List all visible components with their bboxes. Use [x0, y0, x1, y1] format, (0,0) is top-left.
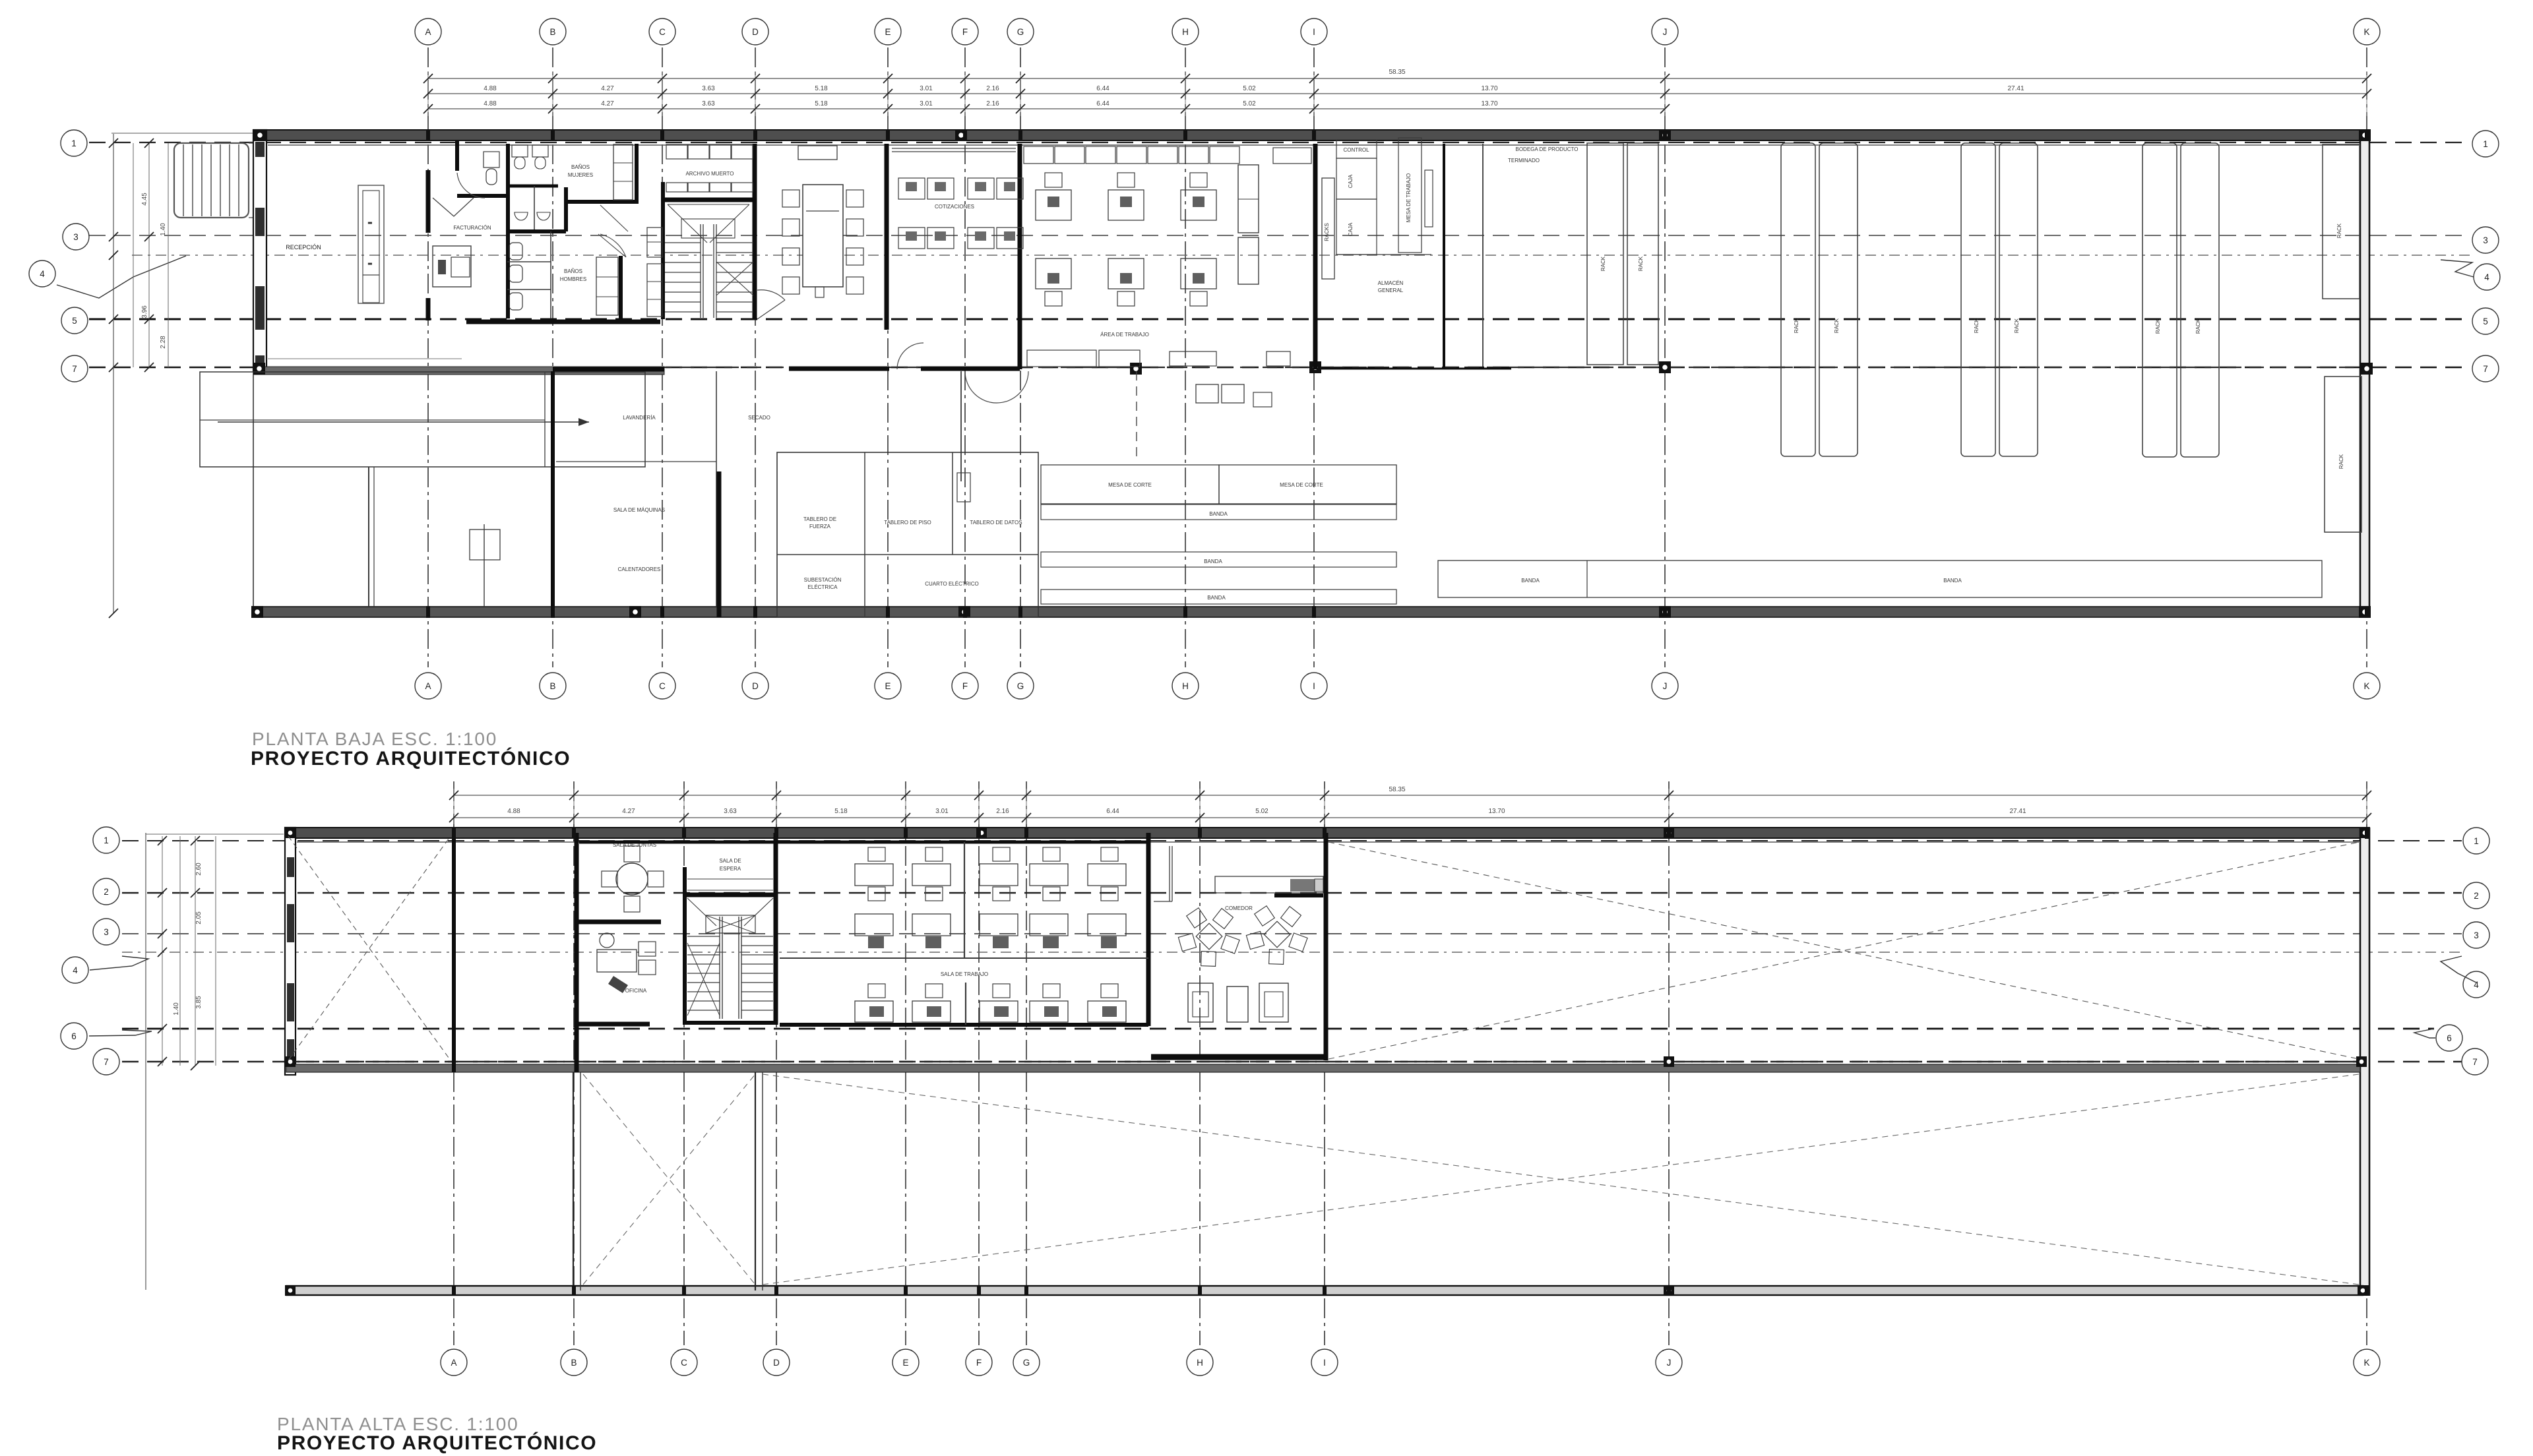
svg-text:RACK: RACK	[2014, 318, 2020, 333]
svg-text:4.27: 4.27	[622, 808, 635, 815]
svg-text:PLANTA ALTA ESC. 1:100: PLANTA ALTA ESC. 1:100	[277, 1414, 518, 1434]
svg-text:2.28: 2.28	[160, 336, 167, 349]
svg-text:ÁREA DE TRABAJO: ÁREA DE TRABAJO	[1100, 332, 1149, 338]
svg-text:BANDA: BANDA	[1207, 595, 1226, 601]
svg-text:I: I	[1323, 1358, 1326, 1368]
svg-text:PLANTA BAJA ESC. 1:100: PLANTA BAJA ESC. 1:100	[252, 729, 497, 749]
svg-text:3: 3	[73, 232, 78, 242]
svg-text:A: A	[425, 681, 431, 691]
svg-text:3.63: 3.63	[724, 808, 737, 815]
svg-text:PROYECTO ARQUITECTÓNICO: PROYECTO ARQUITECTÓNICO	[277, 1432, 597, 1454]
svg-text:C: C	[681, 1358, 687, 1368]
svg-text:RACK: RACK	[1638, 256, 1644, 271]
svg-text:RACK: RACK	[1794, 318, 1799, 333]
svg-text:J: J	[1663, 27, 1668, 37]
svg-text:4: 4	[40, 269, 45, 279]
svg-text:3: 3	[2474, 930, 2479, 940]
svg-text:I: I	[1313, 681, 1315, 691]
svg-text:4: 4	[73, 965, 78, 975]
svg-text:RACK: RACK	[2155, 318, 2161, 334]
svg-text:MUJERES: MUJERES	[568, 172, 593, 178]
svg-text:RACK: RACK	[2338, 454, 2344, 469]
svg-text:MESA DE CORTE: MESA DE CORTE	[1280, 482, 1323, 488]
svg-text:H: H	[1182, 681, 1189, 691]
svg-text:CALENTADORES: CALENTADORES	[618, 566, 661, 572]
svg-text:2.16: 2.16	[996, 808, 1009, 815]
svg-text:CONTROL: CONTROL	[1343, 147, 1369, 153]
svg-text:SECADO: SECADO	[748, 415, 770, 421]
svg-text:E: E	[885, 27, 891, 37]
svg-text:2.16: 2.16	[986, 100, 999, 107]
svg-text:SALA DE TRABAJO: SALA DE TRABAJO	[941, 971, 988, 977]
svg-text:2.60: 2.60	[195, 863, 203, 876]
svg-text:FUERZA: FUERZA	[809, 524, 831, 530]
svg-text:13.70: 13.70	[1488, 808, 1505, 815]
svg-text:2: 2	[104, 887, 109, 897]
svg-text:4.45: 4.45	[141, 193, 148, 206]
svg-text:K: K	[2363, 681, 2369, 691]
svg-text:7: 7	[2483, 364, 2488, 374]
svg-text:BANDA: BANDA	[1209, 511, 1228, 517]
svg-text:4.88: 4.88	[484, 100, 497, 107]
svg-text:RACK: RACK	[1974, 318, 1980, 333]
svg-text:RACK: RACK	[2336, 223, 2342, 238]
svg-text:A: A	[451, 1358, 456, 1368]
svg-text:1.40: 1.40	[173, 1002, 180, 1016]
svg-text:6.44: 6.44	[1106, 808, 1119, 815]
svg-text:5.18: 5.18	[815, 85, 828, 92]
svg-text:MESA DE CORTE: MESA DE CORTE	[1108, 482, 1152, 488]
svg-text:4.88: 4.88	[484, 85, 497, 92]
svg-text:BAÑOS: BAÑOS	[564, 268, 582, 274]
svg-text:3.01: 3.01	[920, 100, 933, 107]
svg-text:RACK: RACK	[1600, 256, 1606, 271]
svg-text:B: B	[571, 1358, 577, 1368]
svg-text:TABLERO DE: TABLERO DE	[803, 516, 836, 522]
svg-text:4.88: 4.88	[507, 808, 520, 815]
svg-text:5: 5	[72, 316, 77, 326]
svg-text:CAJA: CAJA	[1348, 222, 1354, 236]
svg-text:ELÉCTRICA: ELÉCTRICA	[808, 584, 838, 590]
svg-text:F: F	[962, 27, 968, 37]
svg-text:3.01: 3.01	[920, 85, 933, 92]
svg-text:J: J	[1663, 681, 1668, 691]
svg-text:4: 4	[2484, 272, 2489, 282]
svg-text:27.41: 27.41	[2009, 808, 2026, 815]
svg-text:D: D	[752, 27, 759, 37]
svg-text:E: E	[902, 1358, 908, 1368]
svg-text:6.44: 6.44	[1096, 85, 1110, 92]
svg-text:2.16: 2.16	[986, 85, 999, 92]
svg-text:OFICINA: OFICINA	[625, 988, 647, 994]
svg-text:13.70: 13.70	[1481, 100, 1497, 107]
svg-text:1.40: 1.40	[160, 223, 167, 236]
svg-text:3.96: 3.96	[141, 305, 148, 318]
svg-text:CAJA: CAJA	[1348, 174, 1354, 188]
svg-text:5.02: 5.02	[1255, 808, 1268, 815]
svg-text:3.63: 3.63	[702, 85, 715, 92]
svg-text:C: C	[659, 27, 666, 37]
svg-text:3.01: 3.01	[935, 808, 949, 815]
svg-text:K: K	[2363, 27, 2369, 37]
svg-text:SALA DE: SALA DE	[719, 858, 741, 864]
svg-text:1: 1	[2483, 139, 2488, 149]
svg-text:5.18: 5.18	[815, 100, 828, 107]
svg-text:A: A	[425, 27, 431, 37]
svg-text:G: G	[1017, 27, 1024, 37]
svg-text:D: D	[773, 1358, 780, 1368]
svg-text:5.18: 5.18	[834, 808, 848, 815]
svg-text:RACK: RACK	[1834, 318, 1840, 333]
svg-text:BANDA: BANDA	[1204, 559, 1222, 564]
svg-text:H: H	[1197, 1358, 1203, 1368]
svg-text:3: 3	[2483, 235, 2488, 245]
svg-text:G: G	[1017, 681, 1024, 691]
svg-text:7: 7	[104, 1057, 109, 1067]
svg-text:5.02: 5.02	[1243, 100, 1256, 107]
svg-text:2.05: 2.05	[195, 911, 203, 925]
svg-text:I: I	[1313, 27, 1315, 37]
svg-text:BANDA: BANDA	[1521, 578, 1540, 584]
svg-text:ESPERA: ESPERA	[720, 866, 741, 872]
svg-text:7: 7	[72, 364, 77, 374]
svg-text:H: H	[1182, 27, 1189, 37]
svg-text:RECEPCIÓN: RECEPCIÓN	[286, 244, 321, 251]
svg-text:HOMBRES: HOMBRES	[560, 276, 586, 282]
svg-text:B: B	[549, 681, 555, 691]
svg-text:D: D	[752, 681, 759, 691]
svg-text:COTIZACIONES: COTIZACIONES	[935, 204, 974, 210]
svg-text:TABLERO DE PISO: TABLERO DE PISO	[884, 520, 931, 526]
svg-text:G: G	[1023, 1358, 1030, 1368]
svg-text:2: 2	[2474, 891, 2479, 901]
svg-text:1: 1	[71, 138, 77, 148]
svg-text:BODEGA DE PRODUCTO: BODEGA DE PRODUCTO	[1516, 146, 1579, 152]
svg-text:4.27: 4.27	[601, 85, 614, 92]
svg-text:MESA DE TRABAJO: MESA DE TRABAJO	[1406, 173, 1412, 223]
svg-text:PROYECTO ARQUITECTÓNICO: PROYECTO ARQUITECTÓNICO	[251, 747, 571, 770]
svg-text:3.63: 3.63	[702, 100, 715, 107]
svg-text:COMEDOR: COMEDOR	[1225, 905, 1253, 911]
svg-text:6: 6	[71, 1031, 77, 1041]
svg-text:1: 1	[2474, 836, 2479, 846]
svg-text:6.44: 6.44	[1096, 100, 1110, 107]
svg-text:▮: ▮	[367, 262, 373, 265]
svg-text:6: 6	[2447, 1033, 2452, 1043]
svg-text:B: B	[549, 27, 555, 37]
svg-text:BANDA: BANDA	[1943, 578, 1962, 584]
svg-text:58.35: 58.35	[1389, 786, 1405, 793]
svg-text:4.27: 4.27	[601, 100, 614, 107]
svg-text:5.02: 5.02	[1243, 85, 1256, 92]
svg-text:58.35: 58.35	[1389, 69, 1405, 76]
svg-text:E: E	[885, 681, 891, 691]
svg-text:GENERAL: GENERAL	[1378, 288, 1404, 293]
svg-text:5: 5	[2483, 317, 2488, 326]
svg-text:RACK: RACK	[2195, 318, 2201, 334]
svg-text:FACTURACIÓN: FACTURACIÓN	[453, 225, 491, 231]
svg-text:RACKS: RACKS	[1324, 223, 1330, 241]
svg-text:▮: ▮	[367, 222, 373, 224]
svg-text:TERMINADO: TERMINADO	[1508, 158, 1540, 164]
svg-text:SUBESTACIÓN: SUBESTACIÓN	[804, 577, 842, 583]
svg-text:TABLERO DE DATOS: TABLERO DE DATOS	[970, 520, 1022, 526]
svg-text:27.41: 27.41	[2007, 85, 2024, 92]
svg-text:F: F	[962, 681, 968, 691]
svg-text:SALA DE MÁQUINAS: SALA DE MÁQUINAS	[613, 507, 665, 513]
svg-text:K: K	[2363, 1358, 2369, 1368]
svg-text:7: 7	[2472, 1057, 2478, 1067]
svg-text:J: J	[1667, 1358, 1672, 1368]
svg-text:CUARTO ELÉCTRICO: CUARTO ELÉCTRICO	[925, 581, 979, 587]
svg-text:1: 1	[104, 835, 109, 845]
svg-text:BAÑOS: BAÑOS	[571, 164, 590, 170]
svg-text:3: 3	[104, 927, 109, 937]
svg-text:13.70: 13.70	[1481, 85, 1497, 92]
svg-text:ALMACÉN: ALMACÉN	[1378, 280, 1404, 286]
svg-text:F: F	[976, 1358, 982, 1368]
svg-text:ARCHIVO MUERTO: ARCHIVO MUERTO	[685, 171, 734, 177]
svg-text:LAVANDERÍA: LAVANDERÍA	[623, 415, 656, 421]
svg-text:3.85: 3.85	[195, 996, 203, 1009]
svg-text:C: C	[659, 681, 666, 691]
